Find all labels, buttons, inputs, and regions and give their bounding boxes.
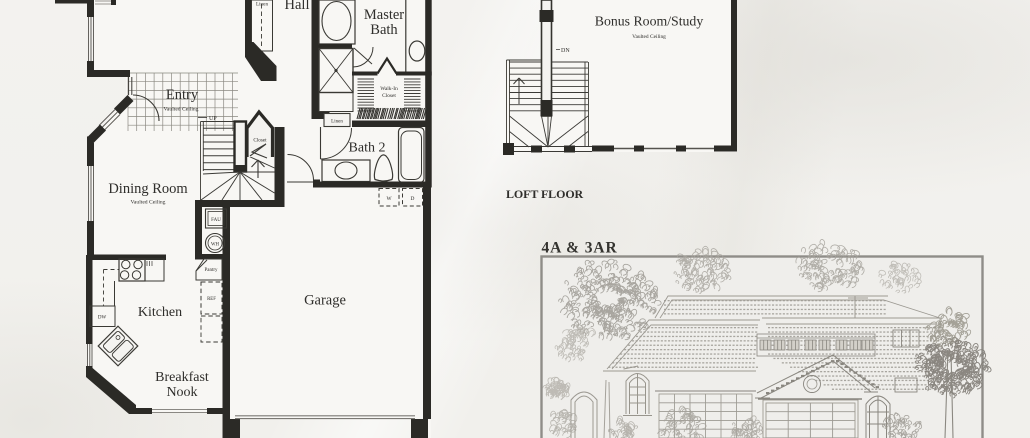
svg-text:REF: REF xyxy=(207,297,216,302)
svg-text:Hall: Hall xyxy=(285,0,310,13)
svg-text:Bath 2: Bath 2 xyxy=(349,141,386,156)
svg-text:DN: DN xyxy=(561,48,570,54)
svg-text:Bath: Bath xyxy=(370,22,398,38)
svg-text:Vaulted Ceiling: Vaulted Ceiling xyxy=(131,200,166,206)
svg-text:Kitchen: Kitchen xyxy=(138,305,182,320)
svg-text:DW: DW xyxy=(98,316,107,321)
svg-text:4A & 3AR: 4A & 3AR xyxy=(542,240,618,257)
svg-text:Master: Master xyxy=(364,7,404,23)
svg-text:LOFT FLOOR: LOFT FLOOR xyxy=(506,187,584,201)
svg-text:Dining Room: Dining Room xyxy=(108,181,188,197)
svg-text:FAU: FAU xyxy=(211,218,221,223)
svg-text:UP: UP xyxy=(209,116,217,122)
svg-text:Vaulted Ceiling: Vaulted Ceiling xyxy=(632,34,666,40)
svg-text:Nook: Nook xyxy=(166,385,197,400)
svg-text:Bonus Room/Study: Bonus Room/Study xyxy=(595,14,704,29)
svg-text:Breakfast: Breakfast xyxy=(155,370,209,385)
svg-text:Entry: Entry xyxy=(166,87,199,103)
svg-text:Walk-In: Walk-In xyxy=(380,86,398,92)
svg-text:Linen: Linen xyxy=(331,120,343,125)
svg-text:Garage: Garage xyxy=(304,293,346,309)
svg-text:Closet: Closet xyxy=(382,93,396,99)
svg-text:D: D xyxy=(411,196,415,202)
svg-text:Closet: Closet xyxy=(253,138,267,144)
svg-text:Linen: Linen xyxy=(256,2,269,8)
svg-text:Vaulted Ceiling: Vaulted Ceiling xyxy=(164,107,199,113)
svg-text:WH: WH xyxy=(211,243,220,248)
svg-text:Pantry: Pantry xyxy=(204,268,218,273)
